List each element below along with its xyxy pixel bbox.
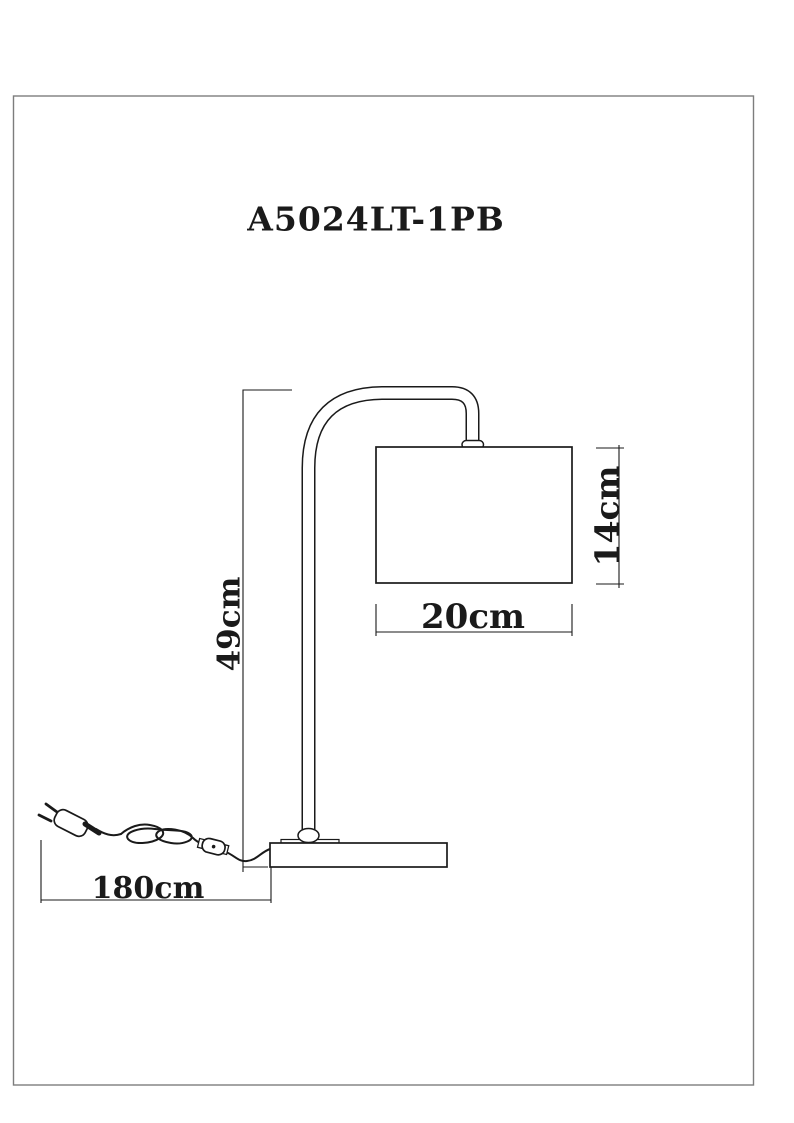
dim-label-overall-height: 49cm (215, 577, 246, 672)
cord-coil (121, 824, 204, 845)
power-cord (96, 824, 270, 861)
power-plug-icon (39, 804, 99, 839)
lamp-base (270, 843, 447, 867)
dim-overall-height-line (243, 390, 292, 872)
lamp-shade (376, 447, 572, 583)
lamp-line-drawing (0, 0, 794, 1123)
sheet-frame (14, 96, 754, 1085)
dim-label-cord-length: 180cm (92, 874, 205, 904)
drawing-sheet: A5024LT-1PB 49cm 14cm 20cm 180cm (0, 0, 794, 1123)
inline-switch-icon (197, 836, 229, 857)
dim-label-shade-width: 20cm (421, 600, 525, 634)
cord-base-segment (224, 849, 270, 861)
product-code-label: A5024LT-1PB (247, 203, 504, 236)
dim-label-shade-height: 14cm (591, 466, 624, 567)
pole-foot-collar (298, 829, 319, 843)
